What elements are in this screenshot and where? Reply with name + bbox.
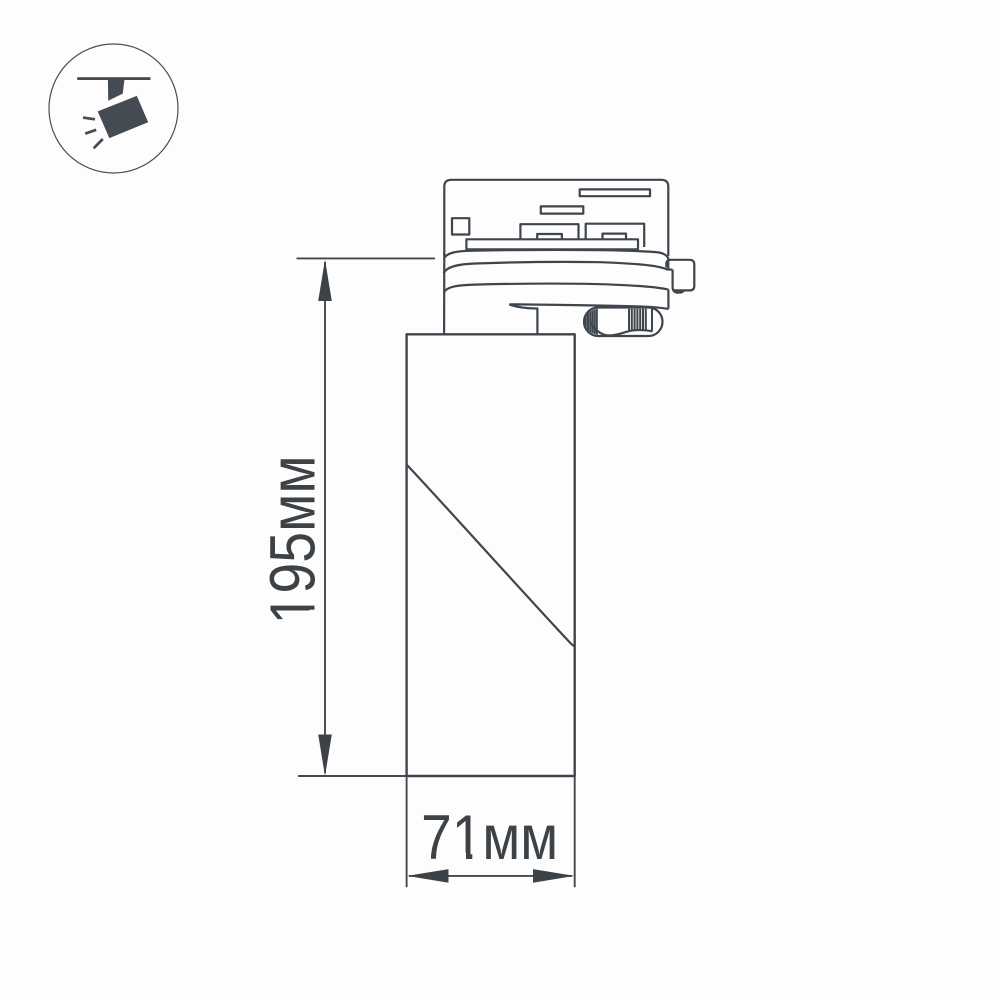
svg-text:71мм: 71мм bbox=[421, 803, 558, 873]
svg-text:195мм: 195мм bbox=[257, 456, 329, 625]
